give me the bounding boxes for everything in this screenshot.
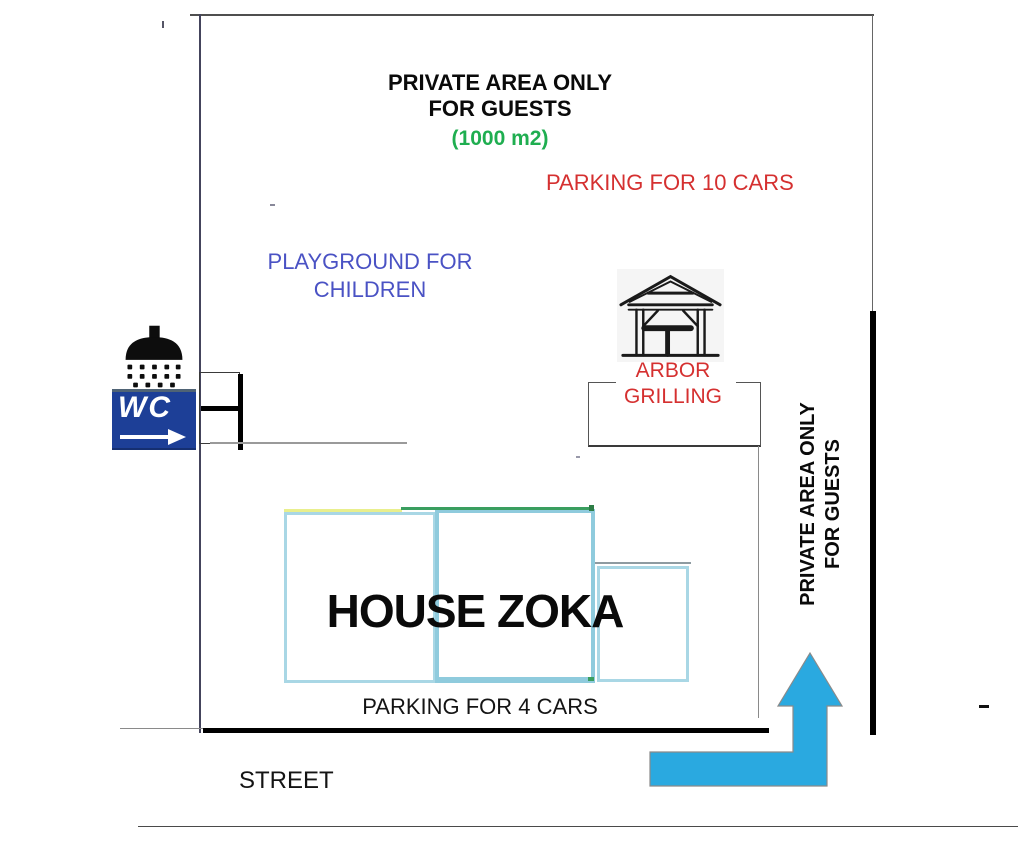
house-roof-gray-line bbox=[595, 562, 691, 564]
arbor-label-line1: ARBOR bbox=[600, 358, 746, 384]
parking-4-cars-label: PARKING FOR 4 CARS bbox=[330, 694, 630, 720]
playground-label-line1: PLAYGROUND FOR bbox=[252, 248, 488, 276]
stray-tick-mark bbox=[162, 21, 164, 28]
roof-green-bottom-tick bbox=[588, 677, 594, 681]
gazebo-icon bbox=[617, 269, 724, 362]
playground-label: PLAYGROUND FOR CHILDREN bbox=[252, 248, 488, 304]
gate-cross-bar bbox=[201, 406, 243, 411]
wc-sign-label: WC bbox=[118, 391, 172, 425]
street-label: STREET bbox=[239, 767, 334, 795]
side-private-area-line2: FOR GUESTS bbox=[821, 384, 846, 624]
playground-label-line2: CHILDREN bbox=[252, 276, 488, 304]
side-private-area-line1: PRIVATE AREA ONLY bbox=[796, 384, 821, 624]
boundary-top-line bbox=[190, 14, 874, 16]
boundary-right-thin-line bbox=[872, 15, 873, 311]
stray-dot-mark-2 bbox=[576, 456, 580, 458]
arbor-area-outline bbox=[588, 382, 761, 447]
side-private-area-label: PRIVATE AREA ONLY FOR GUESTS bbox=[796, 384, 846, 624]
boundary-right-thick-line bbox=[870, 311, 876, 735]
private-area-heading-line2: FOR GUESTS bbox=[330, 96, 670, 122]
wc-arrow-icon bbox=[118, 427, 190, 447]
parking-10-cars-label: PARKING FOR 10 CARS bbox=[546, 170, 794, 196]
house-roof-green-line bbox=[401, 507, 593, 510]
boundary-bottom-thin-line bbox=[120, 728, 203, 729]
property-plan: PRIVATE AREA ONLY FOR GUESTS (1000 m2) P… bbox=[0, 0, 1024, 848]
private-area-heading: PRIVATE AREA ONLY FOR GUESTS bbox=[330, 70, 670, 122]
private-area-heading-line1: PRIVATE AREA ONLY bbox=[330, 70, 670, 96]
wc-sign: WC bbox=[112, 389, 196, 450]
roof-green-end-tick bbox=[589, 505, 594, 511]
gate-post-bar bbox=[238, 374, 243, 450]
house-roof-yellow-line bbox=[284, 509, 402, 512]
street-edge-line bbox=[138, 826, 1018, 827]
entrance-arrow bbox=[640, 645, 855, 795]
fence-line bbox=[210, 442, 407, 444]
stray-dash-mark bbox=[979, 705, 989, 708]
area-size-label: (1000 m2) bbox=[330, 127, 670, 151]
shower-icon bbox=[118, 325, 190, 389]
house-name-label: HOUSE ZOKA bbox=[300, 584, 650, 638]
stray-dot-mark-1 bbox=[270, 204, 275, 206]
